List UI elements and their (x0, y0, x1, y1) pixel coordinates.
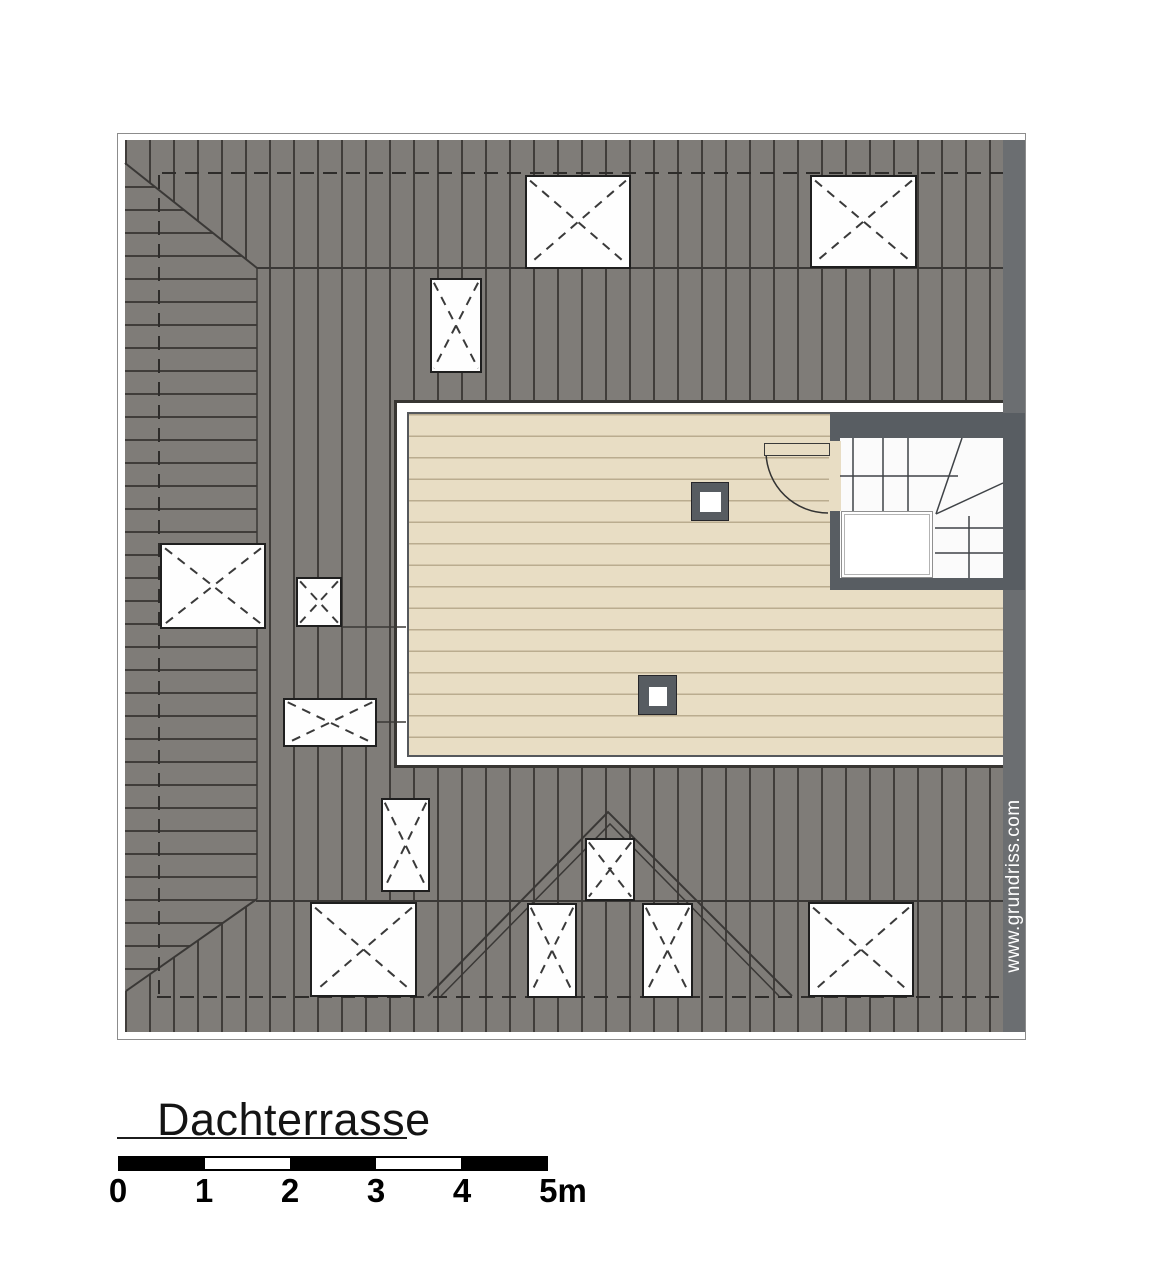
title-underline (117, 1137, 407, 1139)
roof-post-core (649, 687, 667, 706)
stair-landing-inner-line (844, 514, 930, 575)
skylight (283, 698, 377, 747)
skylight (810, 175, 917, 268)
scale-label: 3 (367, 1172, 385, 1210)
terrace-door (764, 443, 830, 456)
skylight (310, 902, 417, 997)
skylight (160, 543, 266, 629)
scale-segment (120, 1158, 205, 1169)
skylight (585, 838, 635, 901)
scale-segment (205, 1158, 290, 1169)
roof-post (638, 675, 677, 715)
scale-segment (461, 1158, 546, 1169)
scale-label: 0 (109, 1172, 127, 1210)
watermark-text: www.grundriss.com (1003, 799, 1025, 972)
scale-label: 4 (453, 1172, 471, 1210)
roof-post (691, 482, 729, 521)
skylight (808, 902, 914, 997)
scale-label: 5m (539, 1172, 587, 1210)
scale-bar (118, 1156, 548, 1171)
skylight (381, 798, 430, 892)
roof-post-core (700, 492, 721, 512)
door-opening (829, 441, 841, 511)
stair-landing (841, 511, 933, 578)
scale-label: 1 (195, 1172, 213, 1210)
skylight (430, 278, 482, 373)
skylight (525, 175, 631, 269)
scale-label: 2 (281, 1172, 299, 1210)
skylight (527, 903, 577, 998)
scale-segment (376, 1158, 461, 1169)
scale-segment (290, 1158, 375, 1169)
floor-plan-canvas: www.grundriss.com (0, 0, 1166, 1280)
skylight (296, 577, 342, 627)
skylight (642, 903, 693, 998)
